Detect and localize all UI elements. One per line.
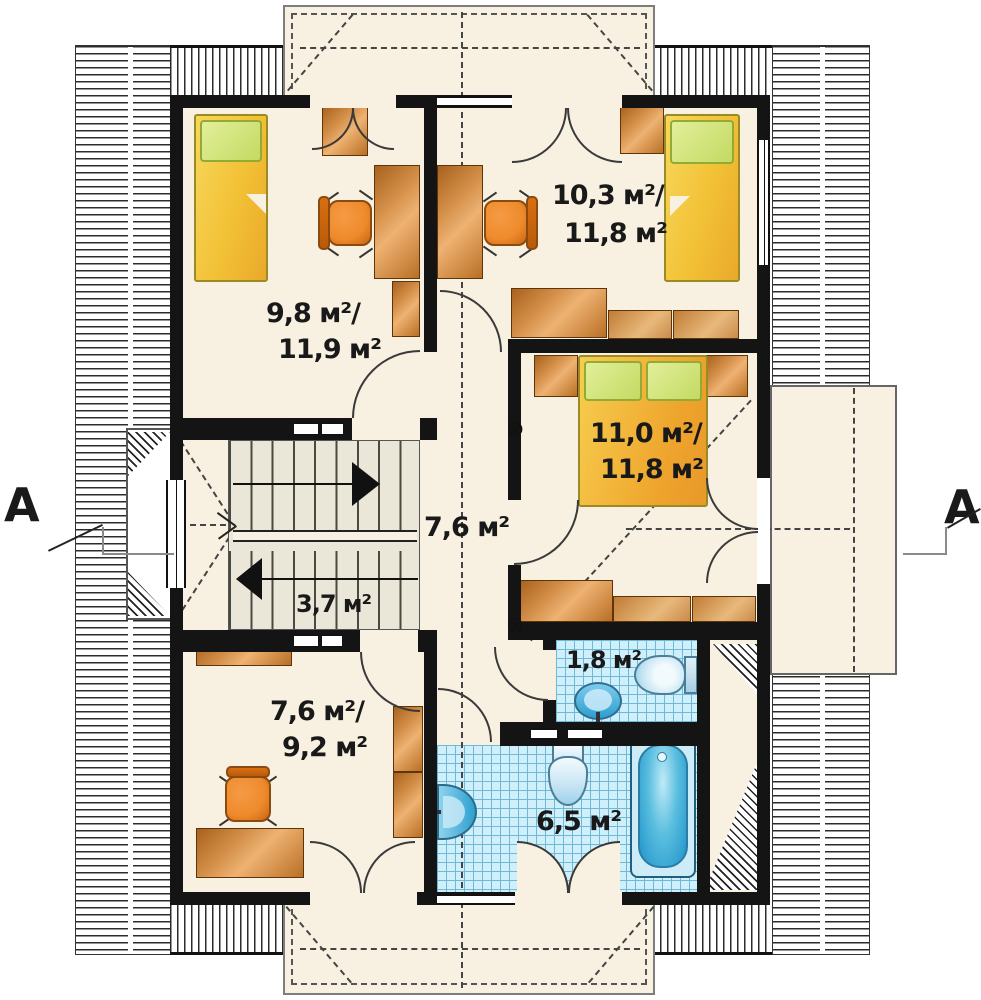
office-chair-study	[216, 766, 280, 828]
bathtub	[630, 736, 700, 880]
wall-between-top-bedrooms	[424, 95, 437, 352]
area-label-bedroom2-line1: 10,3 м²/	[552, 180, 664, 211]
vent-symbol-lower: ⊗	[506, 615, 524, 637]
section-mark-right-line-v	[945, 527, 947, 555]
wall-wc-bath-right	[697, 640, 710, 905]
washbasin-wc	[574, 682, 622, 722]
cabinet-bedroom1	[392, 281, 420, 337]
pillow-bedroom1	[200, 120, 262, 162]
wardrobe-bedroom2	[511, 288, 607, 338]
section-mark-right-line-h	[903, 553, 947, 555]
roof-axis-right	[626, 528, 850, 530]
section-mark-left-line-h	[102, 553, 174, 555]
area-label-study-line2: 9,2 м²	[282, 732, 367, 763]
roof-band-bottom-right	[653, 905, 772, 955]
area-label-wc: 1,8 м²	[566, 646, 641, 674]
interior-window-above-stairs-2	[322, 422, 343, 436]
section-mark-left-label: A	[4, 478, 40, 532]
desk-bedroom2	[437, 165, 483, 279]
door-opening-bedroom2-dormer	[512, 95, 622, 108]
pillow-double-bed-left	[584, 361, 642, 401]
area-label-bedroom1-line1: 9,8 м²/	[266, 298, 360, 329]
cabinet-study-lower	[393, 772, 423, 838]
window-right-bedroom2	[757, 140, 770, 265]
stair-landing-rail	[233, 530, 417, 542]
window-left-stairs	[166, 480, 186, 588]
area-label-bedroom-right-line1: 11,0 м²/	[590, 418, 702, 449]
interior-window-above-stairs-1	[294, 422, 318, 436]
nightstand-bedroom-right-right	[706, 355, 748, 397]
interior-window-bathroom-2	[568, 728, 602, 740]
cabinet-study-upper	[393, 706, 423, 772]
office-chair-bedroom2	[480, 188, 538, 258]
area-label-bedroom2-line2: 11,8 м²	[564, 218, 667, 249]
area-label-bathroom: 6,5 м²	[536, 806, 621, 837]
desk-bedroom1	[374, 165, 420, 279]
floor-plan: ⊗ ⊗	[0, 0, 981, 1000]
door-opening-study-dormer	[310, 892, 417, 905]
vent-symbol-upper: ⊗	[506, 419, 524, 441]
door-opening-bedroom1-dormer	[310, 95, 396, 108]
wall-bedroom2-bottom	[508, 339, 758, 353]
area-label-bedroom-right-line2: 11,8 м²	[600, 454, 703, 485]
area-label-study-line1: 7,6 м²/	[270, 696, 364, 727]
section-mark-left-line-v	[102, 527, 104, 555]
dormer-bottom-eave-line	[300, 948, 640, 950]
roof-band-top-right	[653, 45, 772, 95]
office-chair-bedroom1	[318, 188, 376, 258]
wall-study-top-b	[418, 630, 437, 652]
stair-arrow-down-icon	[236, 558, 262, 600]
balcony-roof-edge	[853, 388, 855, 672]
wall-bedroom-right-bottom	[508, 622, 758, 640]
pedestal-sink	[546, 744, 590, 808]
sofa-cushion-bedroom-right-b	[692, 596, 756, 622]
stair-direction-line-up	[233, 483, 353, 485]
dormer-top-eave-line	[300, 47, 640, 49]
wall-study-right	[424, 652, 437, 905]
nightstand-bedroom2	[620, 106, 664, 154]
door-opening-balcony	[757, 478, 770, 584]
interior-window-below-stairs-2	[322, 634, 342, 648]
sofa-cushion-bedroom2-a	[608, 310, 672, 339]
interior-window-bathroom-1	[531, 728, 557, 740]
stair-direction-line-down	[262, 578, 418, 580]
roof-band-bottom-left	[170, 905, 285, 955]
area-label-stairs: 3,7 м²	[296, 590, 371, 618]
nightstand-bedroom-right-left	[534, 355, 578, 397]
washbasin-corner	[437, 784, 479, 842]
door-opening-bathroom-dormer	[515, 892, 622, 905]
desk-study	[196, 828, 304, 878]
area-label-hall: 7,6 м²	[424, 512, 509, 543]
window-top-center	[437, 96, 512, 107]
roof-band-top-left	[170, 45, 285, 95]
pillow-bedroom2	[670, 120, 734, 164]
sofa-cushion-bedroom2-b	[673, 310, 739, 339]
interior-window-below-stairs-1	[294, 634, 318, 648]
stair-steps-upper	[229, 441, 419, 530]
sofa-cushion-bedroom-right-a	[613, 596, 691, 622]
sofa-bedroom-right	[519, 580, 613, 622]
area-label-bedroom1-line2: 11,9 м²	[278, 334, 381, 365]
stair-arrow-up-icon	[352, 462, 380, 506]
balcony	[770, 385, 897, 675]
toilet	[634, 652, 700, 698]
window-bottom-center	[437, 894, 515, 905]
wall-bedroom1-hall-b	[420, 418, 437, 440]
pillow-double-bed-right	[646, 361, 702, 401]
